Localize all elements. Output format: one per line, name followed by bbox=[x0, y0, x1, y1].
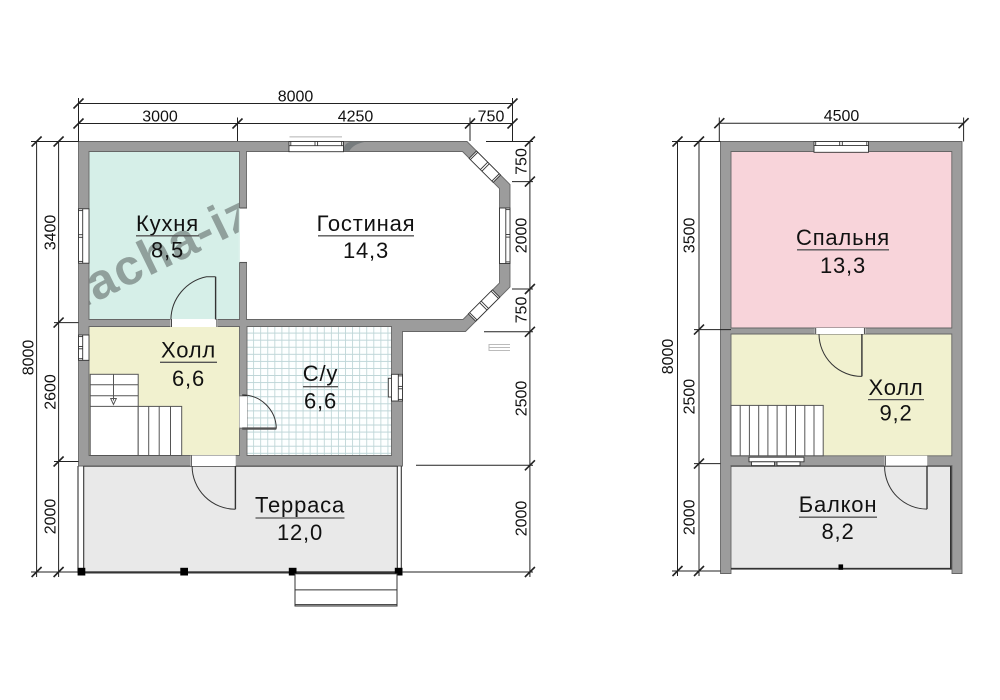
svg-text:С/у: С/у bbox=[303, 361, 338, 386]
svg-text:12,0: 12,0 bbox=[277, 520, 323, 545]
svg-text:Балкон: Балкон bbox=[799, 492, 878, 517]
svg-text:8000: 8000 bbox=[21, 340, 38, 376]
svg-text:2500: 2500 bbox=[682, 379, 699, 415]
svg-text:2500: 2500 bbox=[514, 381, 531, 417]
svg-text:2000: 2000 bbox=[514, 501, 531, 537]
svg-text:Холл: Холл bbox=[161, 338, 216, 363]
svg-text:8,2: 8,2 bbox=[822, 519, 855, 544]
svg-text:4500: 4500 bbox=[824, 108, 860, 125]
svg-text:6,6: 6,6 bbox=[304, 389, 337, 414]
svg-text:Терраса: Терраса bbox=[255, 493, 345, 518]
svg-text:2600: 2600 bbox=[43, 374, 60, 410]
svg-text:Гостиная: Гостиная bbox=[317, 211, 416, 236]
svg-text:6,6: 6,6 bbox=[172, 366, 205, 391]
svg-text:750: 750 bbox=[514, 148, 531, 175]
svg-text:14,3: 14,3 bbox=[343, 238, 389, 263]
svg-text:3400: 3400 bbox=[43, 215, 60, 251]
svg-text:2000: 2000 bbox=[682, 499, 699, 535]
svg-text:Холл: Холл bbox=[868, 375, 923, 400]
svg-text:Спальня: Спальня bbox=[796, 225, 890, 250]
svg-text:8,5: 8,5 bbox=[151, 238, 184, 263]
svg-text:8000: 8000 bbox=[660, 339, 677, 375]
svg-text:750: 750 bbox=[478, 108, 505, 125]
svg-text:13,3: 13,3 bbox=[820, 253, 866, 278]
svg-text:750: 750 bbox=[514, 297, 531, 324]
svg-text:8000: 8000 bbox=[278, 88, 314, 105]
svg-text:9,2: 9,2 bbox=[880, 401, 913, 426]
svg-text:3500: 3500 bbox=[682, 218, 699, 254]
svg-text:Кухня: Кухня bbox=[136, 211, 199, 236]
svg-text:2000: 2000 bbox=[514, 218, 531, 254]
svg-text:4250: 4250 bbox=[338, 108, 374, 125]
svg-text:3000: 3000 bbox=[142, 108, 178, 125]
svg-text:2000: 2000 bbox=[43, 499, 60, 535]
